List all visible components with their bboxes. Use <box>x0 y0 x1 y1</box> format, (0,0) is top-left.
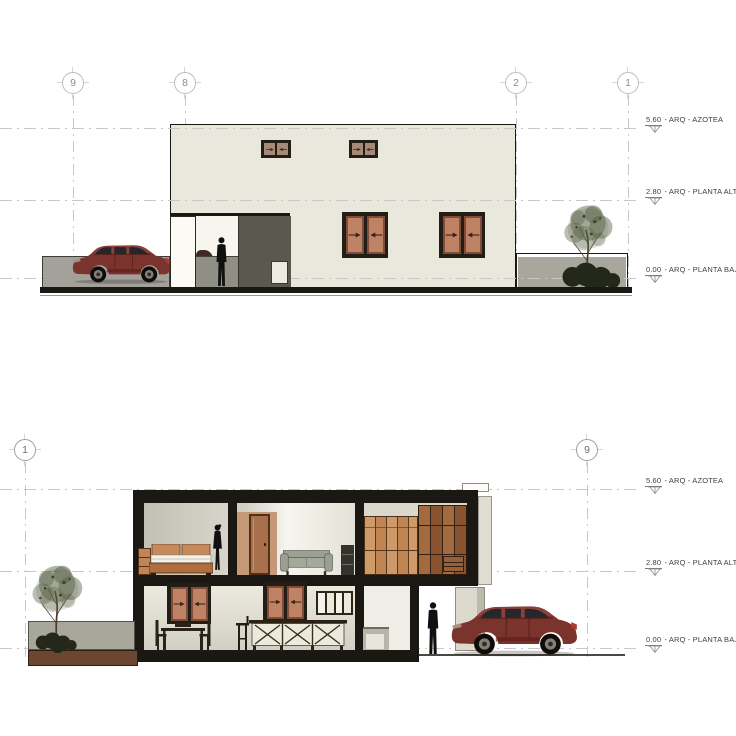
roof-slab <box>133 490 478 503</box>
slide-arrow-right-icon <box>266 147 274 152</box>
bed <box>149 544 213 575</box>
grid-bubble: 2 <box>500 67 532 99</box>
bush <box>34 626 78 653</box>
spot-elevation-icon <box>647 275 663 284</box>
person-silhouette <box>215 237 228 287</box>
level-label-planta-baja: 0.00 - ARQ - PLANTA BAJA <box>645 265 736 276</box>
wall-right-upper <box>467 503 478 586</box>
suv-car <box>70 234 172 290</box>
window-small <box>261 140 291 158</box>
slide-arrow-left-icon <box>279 147 287 152</box>
level-label-planta-alta: 2.80 - ARQ - PLANTA ALTA <box>645 558 736 569</box>
drawer-stack <box>443 556 464 572</box>
wardrobe-dark <box>418 505 467 575</box>
slide-arrow-right-icon <box>353 147 361 152</box>
grid-bubble: 8 <box>169 67 201 99</box>
level-label-planta-baja: 0.00 - ARQ - PLANTA BAJA <box>645 635 736 646</box>
window-sliding <box>167 583 211 624</box>
grid-bubble-label: 9 <box>70 77 76 89</box>
level-name: - ARQ - AZOTEA <box>664 476 723 485</box>
level-line-azotea <box>0 128 641 129</box>
slide-arrow-left-icon <box>193 600 206 608</box>
grid-bubble-label: 2 <box>513 77 519 89</box>
spot-elevation-icon <box>647 197 663 206</box>
slide-arrow-right-icon <box>348 231 362 239</box>
kitchen-island <box>249 620 347 651</box>
grid-bubble: 9 <box>571 434 603 466</box>
dining-set <box>155 620 211 651</box>
door-handle <box>264 543 267 546</box>
slide-arrow-right-icon <box>173 600 186 608</box>
grid-bubble-label: 9 <box>584 444 590 456</box>
spot-elevation-icon <box>647 486 663 495</box>
ground-slab <box>133 650 419 662</box>
level-label-azotea: 5.60 - ARQ - AZOTEA <box>645 115 723 126</box>
slide-arrow-left-icon <box>466 231 480 239</box>
slide-arrow-right-icon <box>269 598 282 606</box>
window-sliding <box>263 582 307 622</box>
slide-arrow-left-icon <box>366 147 374 152</box>
level-name: - ARQ - PLANTA BAJA <box>664 635 736 644</box>
window-small <box>349 140 378 158</box>
spot-elevation-icon <box>647 125 663 134</box>
wall-bedroom <box>228 503 237 575</box>
shelf-cart <box>341 545 354 575</box>
architectural-sheet: 9 8 2 1 5.60 - ARQ - AZOTEA 2.80 - ARQ -… <box>0 0 736 736</box>
door <box>249 514 270 575</box>
grid-bubble: 9 <box>57 67 89 99</box>
level-name: - ARQ - PLANTA ALTA <box>664 558 736 567</box>
grid-bubble-label: 8 <box>182 77 188 89</box>
wall-cabinet <box>316 591 353 615</box>
level-label-planta-alta: 2.80 - ARQ - PLANTA ALTA <box>645 187 736 198</box>
bar-stool <box>236 616 249 651</box>
person-silhouette <box>426 602 440 655</box>
person-silhouette <box>211 524 224 571</box>
level-line-planta-alta <box>0 200 641 201</box>
grid-line-9 <box>587 462 588 662</box>
utility-counter <box>363 627 389 650</box>
spot-elevation-icon <box>647 645 663 654</box>
grid-bubble-label: 1 <box>22 444 28 456</box>
grid-bubble: 1 <box>9 434 41 466</box>
level-label-azotea: 5.60 - ARQ - AZOTEA <box>645 476 723 487</box>
slide-arrow-left-icon <box>369 231 383 239</box>
facade-column <box>170 216 196 292</box>
bush <box>560 254 622 291</box>
level-name: - ARQ - PLANTA ALTA <box>664 187 736 196</box>
slide-arrow-right-icon <box>445 231 459 239</box>
utility-box <box>271 261 288 284</box>
window-sliding <box>439 212 485 258</box>
building-side-face <box>478 496 492 585</box>
ground-sub-line <box>40 295 632 296</box>
sofa <box>280 550 333 575</box>
section-view: 1 9 5.60 - ARQ - AZOTEA 2.80 - ARQ - PLA… <box>0 0 736 736</box>
level-name: - ARQ - AZOTEA <box>664 115 723 124</box>
wardrobe-light <box>364 516 418 575</box>
grid-bubble: 1 <box>612 67 644 99</box>
window-sliding <box>342 212 388 258</box>
spot-elevation-icon <box>647 568 663 577</box>
slide-arrow-left-icon <box>289 598 302 606</box>
level-name: - ARQ - PLANTA BAJA <box>664 265 736 274</box>
suv-car <box>448 596 580 660</box>
grid-bubble-label: 1 <box>625 77 631 89</box>
